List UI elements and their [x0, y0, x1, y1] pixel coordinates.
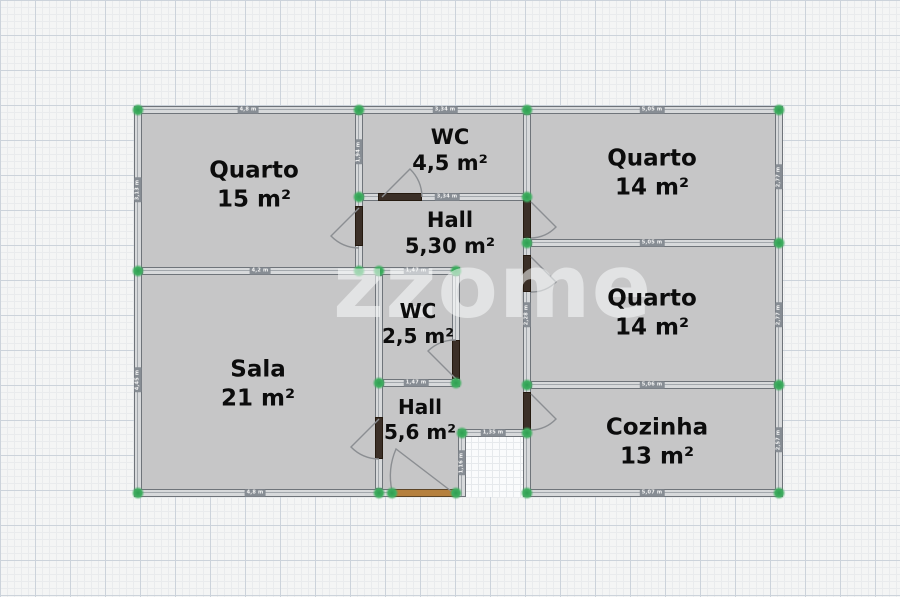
room-name: Quarto [607, 284, 697, 313]
dimension-label: 4,45 m [135, 368, 142, 393]
wall-node-marker[interactable] [132, 104, 145, 117]
wall-node-marker[interactable] [132, 487, 145, 500]
wall-node-marker[interactable] [773, 487, 786, 500]
wall-node-marker[interactable] [773, 379, 786, 392]
room-label-sala: Sala 21 m² [221, 355, 295, 413]
dimension-label: 5,05 m [640, 107, 665, 114]
room-label-wc-2: WC 2,5 m² [382, 299, 454, 349]
room-label-quarto-1: Quarto 15 m² [209, 156, 299, 214]
room-name: Quarto [209, 156, 299, 185]
room-label-hall-2: Hall 5,6 m² [384, 395, 456, 445]
wall-node-marker[interactable] [450, 487, 463, 500]
room-label-cozinha: Cozinha 13 m² [606, 413, 708, 471]
dimension-label: 2,77 m [776, 165, 783, 190]
wall-node-marker[interactable] [450, 377, 463, 390]
room-area: 14 m² [607, 313, 697, 342]
dimension-label: 1,16 m [459, 451, 466, 476]
door-swing-arc [390, 449, 451, 491]
wall-node-marker[interactable] [386, 487, 399, 500]
dimension-label: 1,35 m [481, 430, 506, 437]
dimension-label: 3,34 m [435, 194, 460, 201]
wall-node-marker[interactable] [521, 487, 534, 500]
dimension-label: 4,8 m [245, 490, 266, 497]
wall-node-marker[interactable] [353, 191, 366, 204]
room-name: WC [412, 124, 488, 150]
room-area: 5,6 m² [384, 420, 456, 445]
room-name: Sala [221, 355, 295, 384]
wall-node-marker[interactable] [373, 377, 386, 390]
room-name: Hall [384, 395, 456, 420]
room-label-quarto-2: Quarto 14 m² [607, 144, 697, 202]
room-name: Cozinha [606, 413, 708, 442]
room-label-quarto-3: Quarto 14 m² [607, 284, 697, 342]
room-area: 5,30 m² [405, 233, 495, 259]
room-name: Hall [405, 207, 495, 233]
room-label-hall-1: Hall 5,30 m² [405, 207, 495, 260]
door-swing-arc [531, 202, 556, 238]
dimension-label: 3,13 m [135, 178, 142, 203]
dimension-label: 2,77 m [776, 303, 783, 328]
dimension-label: 5,07 m [640, 490, 665, 497]
room-name: Quarto [607, 144, 697, 173]
floor-plan-canvas: 4,8 m 3,34 m 5,05 m 3,34 m 5,05 m 5,06 m… [0, 0, 900, 597]
dimension-label: 4,2 m [250, 268, 271, 275]
room-area: 4,5 m² [412, 150, 488, 176]
dimension-label: 1,94 m [356, 140, 363, 165]
room-area: 21 m² [221, 384, 295, 413]
wall-node-marker[interactable] [353, 104, 366, 117]
dimension-label: 1,47 m [404, 380, 429, 387]
room-area: 15 m² [209, 185, 299, 214]
door-swing-arc [531, 394, 556, 430]
wall-node-marker[interactable] [521, 191, 534, 204]
wall-node-marker[interactable] [521, 427, 534, 440]
room-area: 2,5 m² [382, 324, 454, 349]
wall-node-marker[interactable] [456, 427, 469, 440]
room-area: 13 m² [606, 442, 708, 471]
dimension-label: 5,06 m [640, 382, 665, 389]
wall-node-marker[interactable] [521, 104, 534, 117]
dimension-label: 2,57 m [776, 428, 783, 453]
room-name: WC [382, 299, 454, 324]
wall-node-marker[interactable] [773, 104, 786, 117]
wall-node-marker[interactable] [521, 379, 534, 392]
wall-node-marker[interactable] [132, 265, 145, 278]
door-swing-arc [351, 419, 379, 459]
dimension-label: 3,34 m [433, 107, 458, 114]
dimension-label: 4,8 m [238, 107, 259, 114]
room-area: 14 m² [607, 173, 697, 202]
wall-node-marker[interactable] [373, 487, 386, 500]
room-label-wc-1: WC 4,5 m² [412, 124, 488, 177]
wall-node-marker[interactable] [773, 237, 786, 250]
